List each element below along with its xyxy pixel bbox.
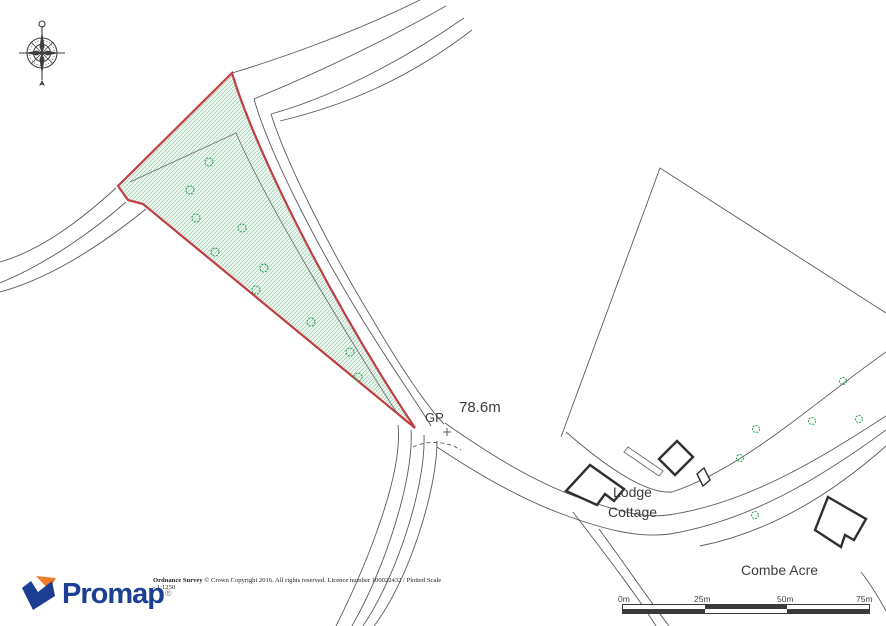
promap-wordmark: Promap bbox=[62, 578, 164, 610]
scale-bar-rule bbox=[622, 604, 870, 614]
plot-area-hatch bbox=[118, 73, 415, 428]
road-line-south-4 bbox=[374, 441, 437, 626]
tree-icon bbox=[856, 416, 863, 423]
scale-bar-segment bbox=[623, 609, 705, 613]
tree-icon bbox=[753, 426, 760, 433]
scale-bar-segment bbox=[787, 609, 869, 613]
scale-label-25: 25m bbox=[694, 594, 711, 604]
hedge-boundary-line bbox=[566, 352, 886, 492]
outbuilding-small bbox=[697, 468, 710, 486]
tree-icon bbox=[809, 418, 816, 425]
lodge-cottage-label-line2: Cottage bbox=[608, 504, 657, 520]
scale-label-0: 0m bbox=[618, 594, 630, 604]
scale-label-75: 75m bbox=[856, 594, 873, 604]
lodge-cottage-label-line1: Lodge bbox=[613, 484, 652, 500]
map-canvas: GP 78.6m Lodge Cottage Combe Acre bbox=[0, 0, 886, 626]
outbuilding-square bbox=[659, 441, 693, 475]
promap-logo: Promap® bbox=[20, 576, 172, 612]
spot-height-cross-icon bbox=[443, 428, 451, 436]
scale-bar-segment bbox=[705, 605, 787, 609]
tree-icon bbox=[752, 512, 759, 519]
scale-label-50: 50m bbox=[777, 594, 794, 604]
driveway-strip bbox=[624, 447, 663, 476]
road-line-top-1 bbox=[232, 0, 420, 73]
road-line-left-2 bbox=[0, 202, 126, 283]
parcel-boundary-line bbox=[561, 168, 886, 437]
gp-label: GP bbox=[425, 410, 444, 425]
compass-rose-icon bbox=[14, 16, 72, 88]
ordnance-survey-map: GP 78.6m Lodge Cottage Combe Acre bbox=[0, 0, 886, 626]
promap-logo-icon bbox=[20, 576, 56, 612]
copyright-notice: Ordnance Survey © Crown Copyright 2016. … bbox=[153, 577, 443, 592]
scale-bar: 0m 25m 50m 75m bbox=[616, 594, 878, 618]
spot-height-label: 78.6m bbox=[459, 399, 501, 416]
road-line-left-3 bbox=[0, 209, 146, 292]
combe-acre-building bbox=[815, 497, 866, 547]
road-line-south-2 bbox=[352, 430, 411, 626]
combe-acre-label: Combe Acre bbox=[741, 562, 818, 578]
copyright-prefix: Ordnance Survey bbox=[153, 577, 203, 584]
